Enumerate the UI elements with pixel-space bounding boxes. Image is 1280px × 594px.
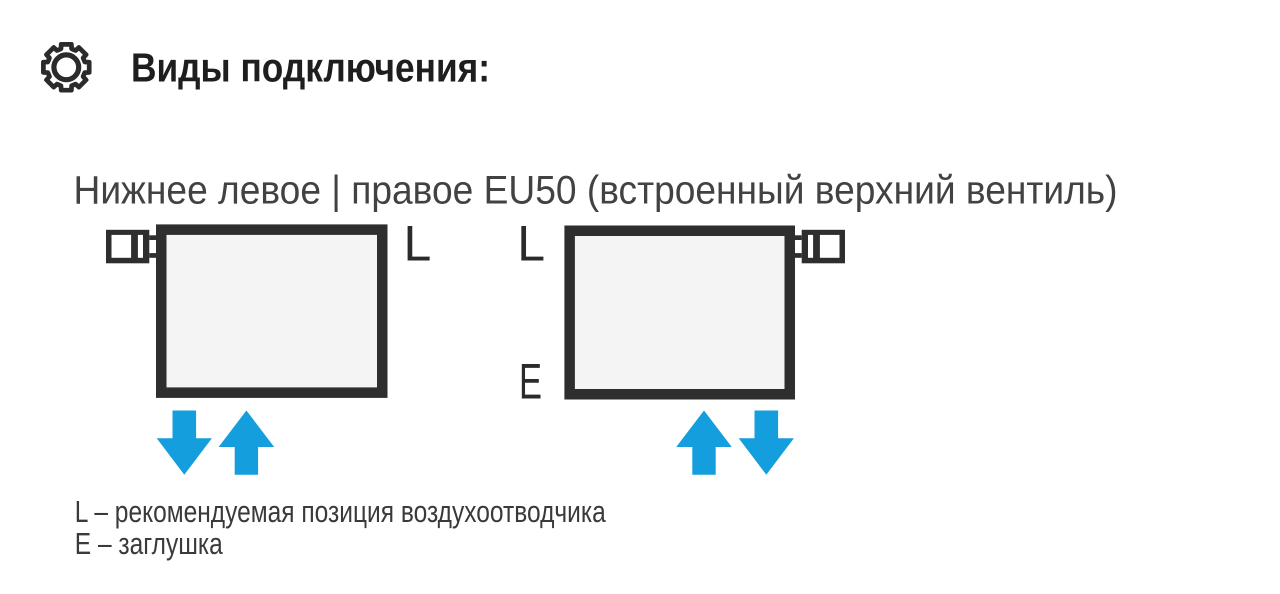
svg-text:E: E xyxy=(519,354,542,410)
svg-text:L: L xyxy=(404,215,432,271)
svg-text:L: L xyxy=(517,215,545,271)
svg-text:E – заглушка: E – заглушка xyxy=(75,527,223,561)
svg-text:L – рекомендуемая позиция возд: L – рекомендуемая позиция воздухоотводчи… xyxy=(75,495,606,529)
svg-text:Нижнее левое | правое EU50 (вс: Нижнее левое | правое EU50 (встроенный в… xyxy=(74,169,1118,213)
svg-text:Виды подключения:: Виды подключения: xyxy=(131,45,490,91)
